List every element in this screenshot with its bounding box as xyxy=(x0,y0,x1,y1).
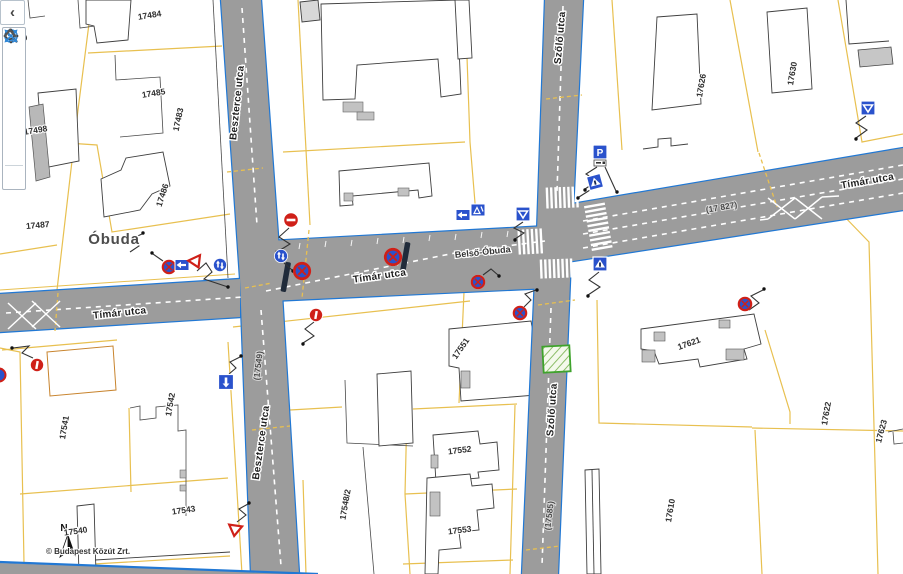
keep-right-sign xyxy=(213,258,227,272)
no-stopping-sign xyxy=(513,306,527,320)
one-way-down-sign xyxy=(219,375,234,390)
collapse-icon: ‹ xyxy=(10,4,15,21)
zoom-next-button[interactable] xyxy=(3,125,25,144)
ped-crossing-sign xyxy=(593,257,607,271)
map-toolbar xyxy=(2,27,26,190)
zoom-out-button[interactable] xyxy=(3,87,25,106)
full-extent-button[interactable] xyxy=(3,144,25,163)
give-way-ahead-sign xyxy=(861,101,875,115)
scroll-up-icon xyxy=(3,28,17,38)
toolbar-divider xyxy=(5,165,23,166)
scroll-up-button[interactable] xyxy=(3,168,25,187)
collapse-panel-button[interactable]: ‹ xyxy=(0,0,25,25)
ped-crossing-sign xyxy=(586,173,603,190)
no-parking-sign xyxy=(309,308,323,322)
globe-pan-button[interactable] xyxy=(3,49,25,68)
no-stopping-sign xyxy=(738,297,752,311)
no-stopping-sign xyxy=(162,260,176,274)
svg-text:P: P xyxy=(597,148,604,159)
street-label: Óbuda xyxy=(88,230,140,248)
map-viewport[interactable]: P N © Budapest Közút Zrt. Tímár utcaTímá… xyxy=(0,0,903,574)
zoom-in-button[interactable] xyxy=(3,68,25,87)
no-stopping-sign xyxy=(293,262,311,280)
arrow-left-sign xyxy=(456,210,470,221)
copyright-label: © Budapest Közút Zrt. xyxy=(46,547,130,556)
arrow-left-sign xyxy=(175,260,189,271)
parking-sign: P xyxy=(593,145,607,166)
no-parking-sign xyxy=(30,358,44,372)
no-stopping-sign xyxy=(471,275,485,289)
keep-right-sign xyxy=(274,249,288,263)
half-circle-sign xyxy=(0,369,6,382)
map-canvas[interactable]: P N © Budapest Közút Zrt. Tímár utcaTímá… xyxy=(0,0,903,574)
lane-direction-sign xyxy=(471,204,485,216)
no-stopping-sign xyxy=(384,248,402,266)
zoom-previous-button[interactable] xyxy=(3,106,25,125)
give-way-ahead-sign xyxy=(516,207,530,221)
no-entry-sign xyxy=(283,212,298,227)
parcel-number-label: 17487 xyxy=(26,219,51,231)
loading-zone-marking xyxy=(542,345,570,372)
